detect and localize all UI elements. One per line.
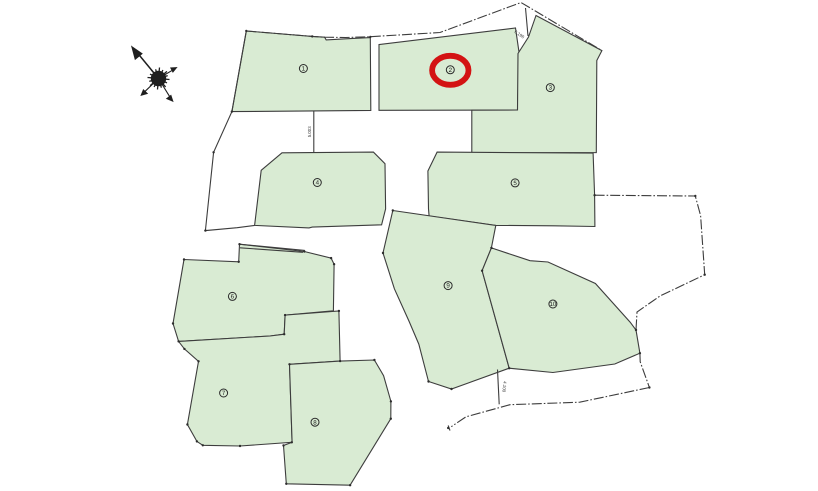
- svg-text:4.100: 4.100: [501, 381, 507, 393]
- svg-text:7: 7: [222, 390, 226, 397]
- svg-text:5: 5: [513, 180, 517, 187]
- svg-text:8: 8: [313, 419, 317, 426]
- svg-text:6: 6: [231, 294, 235, 301]
- svg-text:1: 1: [302, 66, 306, 73]
- svg-text:2: 2: [449, 67, 453, 74]
- svg-text:9: 9: [446, 283, 450, 290]
- svg-text:10: 10: [549, 301, 556, 308]
- svg-text:4: 4: [316, 180, 320, 187]
- svg-text:3: 3: [549, 85, 553, 92]
- svg-text:5.003: 5.003: [307, 126, 312, 138]
